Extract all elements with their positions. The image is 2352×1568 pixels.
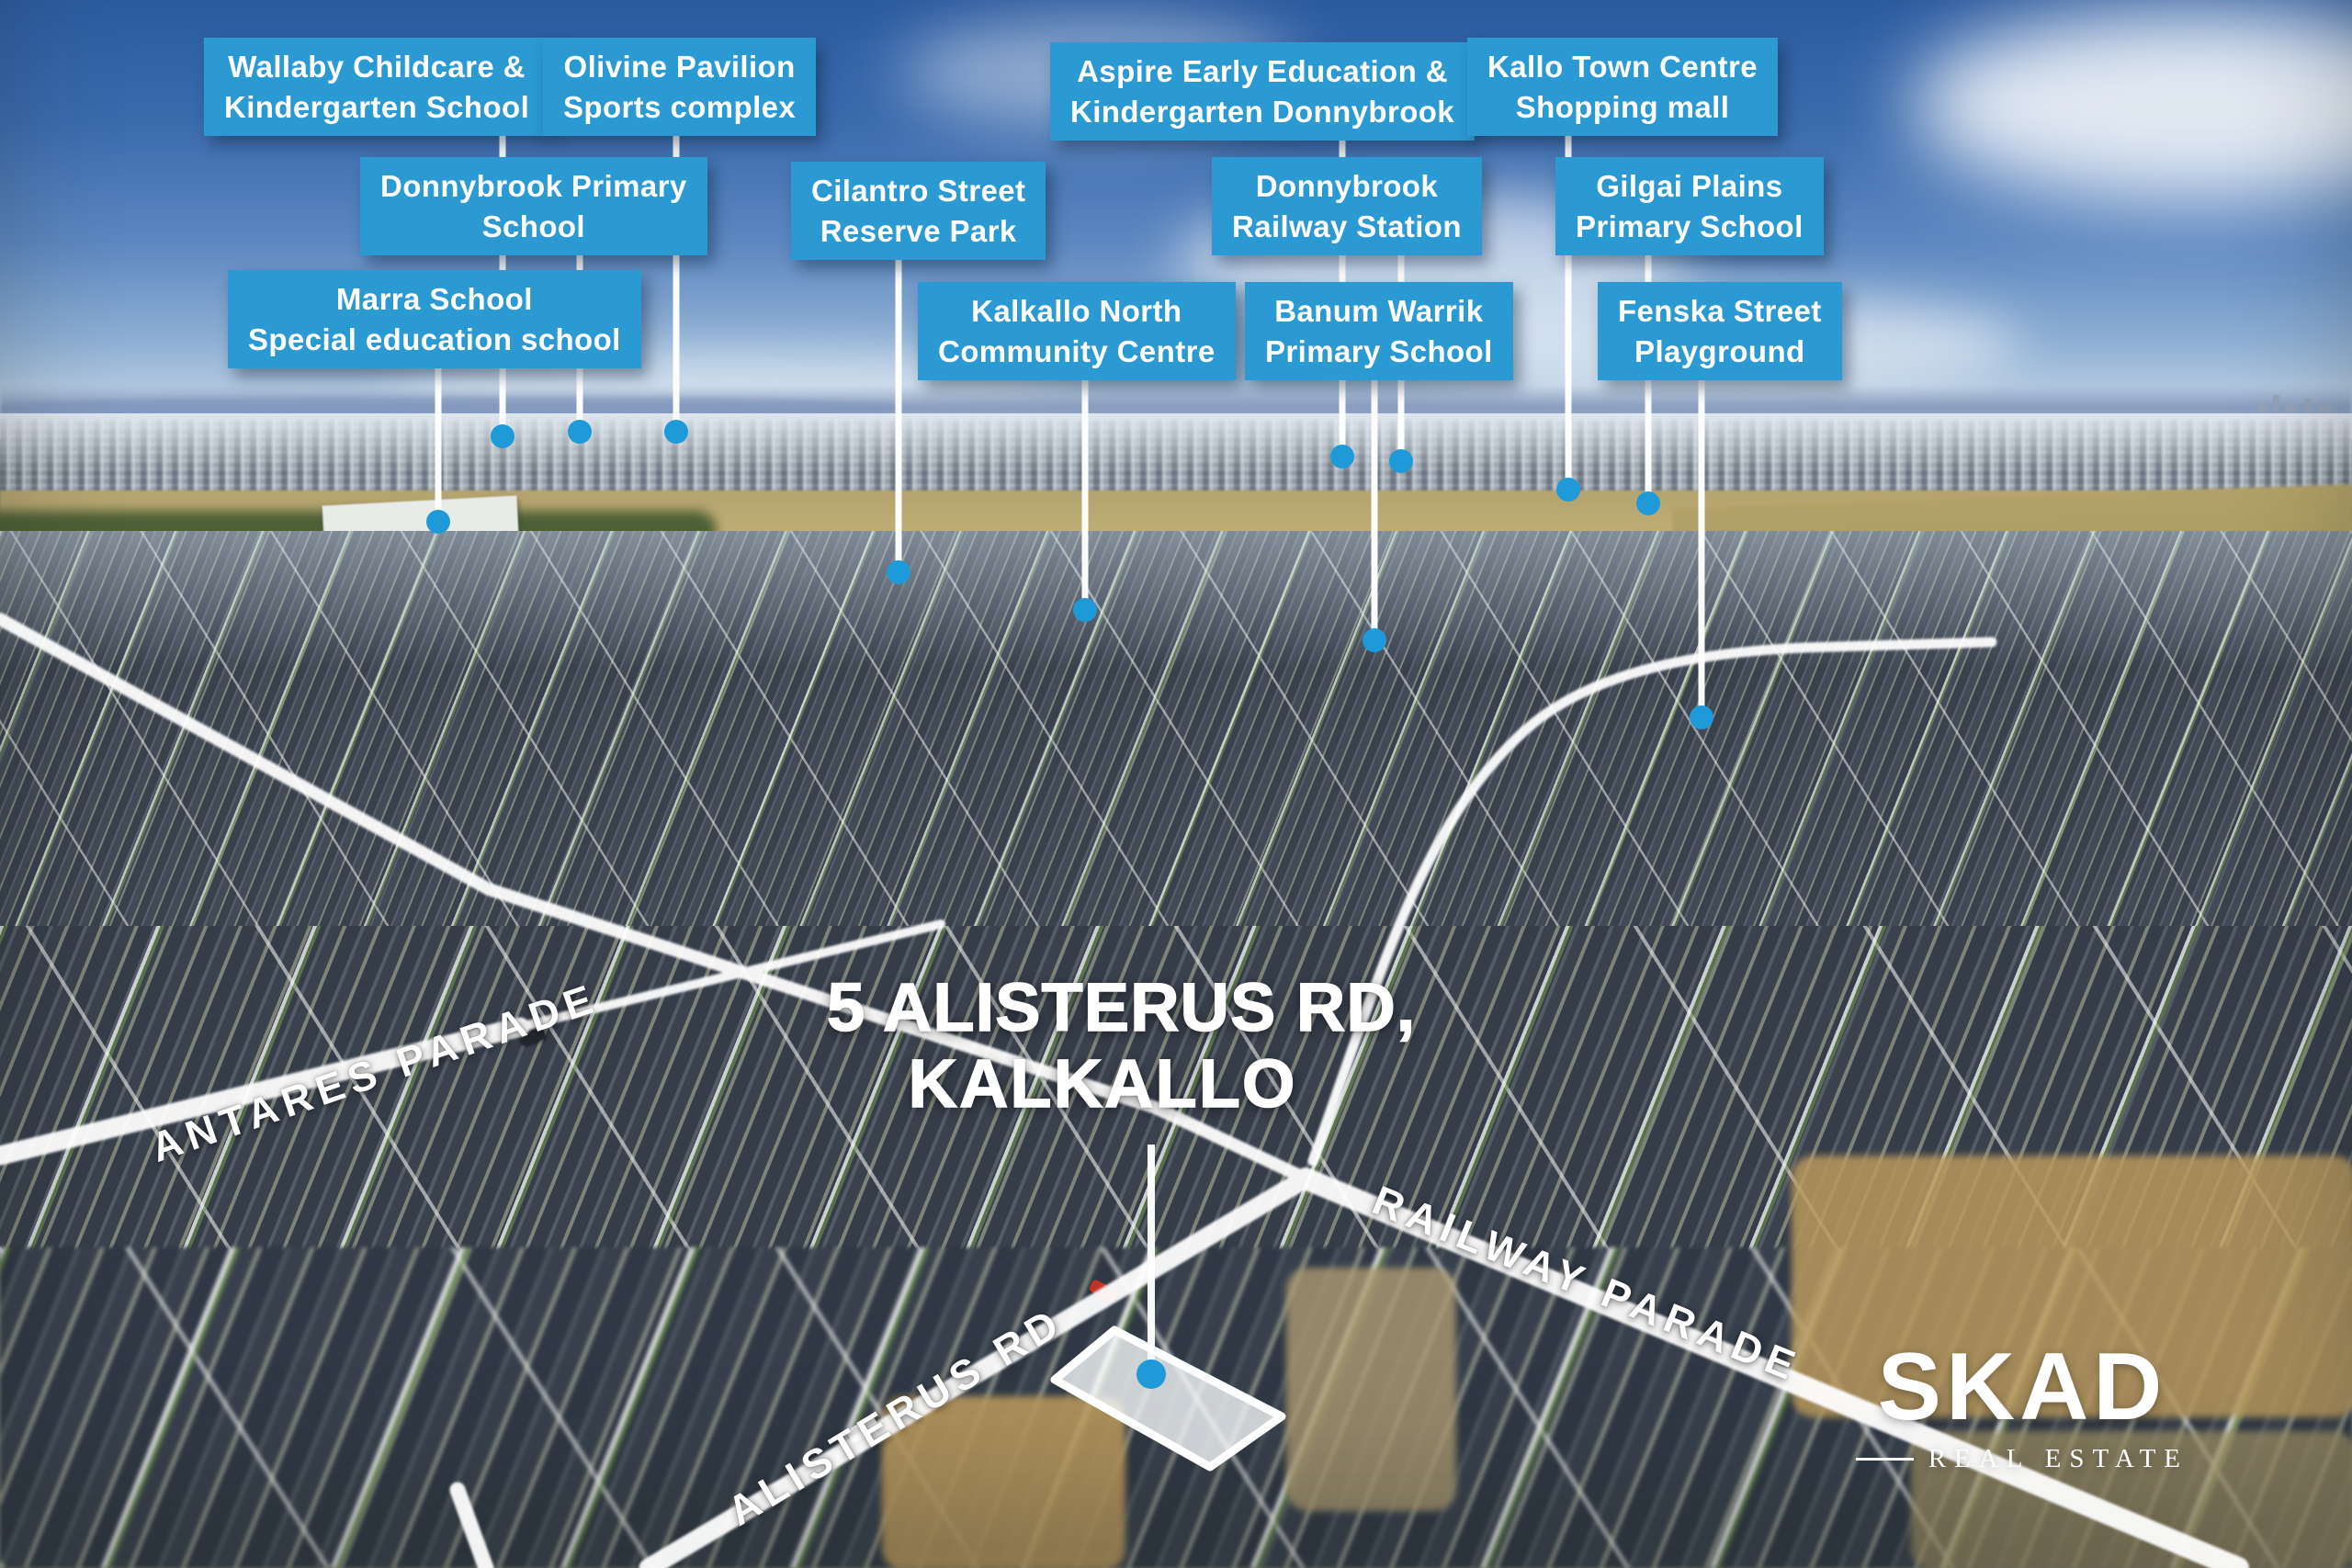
callout-gilgai-plains-primary: Gilgai Plains Primary School [1555, 157, 1824, 255]
callout-line: Kindergarten Donnybrook [1070, 92, 1454, 132]
marker-dot-donnybrook-primary [568, 420, 592, 444]
map-overlay [0, 0, 2352, 1568]
marker-dot-fenska [1690, 705, 1713, 729]
callout-fenska-street-playground: Fenska Street Playground [1598, 282, 1842, 380]
road-branch-highlight [1313, 642, 1992, 1161]
callout-line: Aspire Early Education & [1070, 51, 1454, 92]
callout-line: Reserve Park [811, 211, 1025, 252]
callout-line: Primary School [1265, 332, 1493, 372]
callout-line: Special education school [248, 320, 621, 360]
callout-olivine-pavilion: Olivine Pavilion Sports complex [543, 38, 816, 136]
callout-line: Community Centre [938, 332, 1216, 372]
callout-line: Banum Warrik [1265, 291, 1493, 332]
property-title-line1: 5 ALISTERUS RD, [827, 970, 1378, 1046]
callout-line: Donnybrook Primary [380, 166, 687, 207]
callout-line: School [380, 207, 687, 247]
callout-kalkallo-north-community: Kalkallo North Community Centre [918, 282, 1236, 380]
callout-line: Primary School [1576, 207, 1804, 247]
callout-kallo-town-centre: Kallo Town Centre Shopping mall [1467, 38, 1778, 136]
property-title: 5 ALISTERUS RD, KALKALLO [827, 970, 1378, 1122]
road-stub-highlight [458, 1490, 486, 1568]
marker-dot-banum [1363, 628, 1386, 652]
marker-dot-olivine [664, 420, 688, 444]
callout-line: Playground [1618, 332, 1822, 372]
marker-dot-marra [426, 510, 450, 534]
callout-donnybrook-railway-station: Donnybrook Railway Station [1212, 157, 1482, 255]
marker-dot-gilgai [1636, 491, 1660, 515]
logo-tagline: REAL ESTATE [1928, 1444, 2188, 1474]
aerial-map: ANTARES PARADE RAILWAY PARADE ALISTERUS … [0, 0, 2352, 1568]
callout-line: Kindergarten School [224, 87, 529, 128]
callout-line: Marra School [248, 279, 621, 320]
logo-rule [1856, 1458, 1914, 1461]
marker-dot-wallaby [491, 424, 514, 448]
callout-line: Railway Station [1232, 207, 1462, 247]
marker-dot-property [1136, 1359, 1166, 1389]
callout-line: Olivine Pavilion [563, 47, 796, 87]
callout-line: Wallaby Childcare & [224, 47, 529, 87]
property-title-line2: KALKALLO [827, 1046, 1378, 1122]
callout-line: Sports complex [563, 87, 796, 128]
logo-tagline-row: REAL ESTATE [1856, 1444, 2188, 1474]
callout-wallaby-childcare: Wallaby Childcare & Kindergarten School [204, 38, 549, 136]
agency-logo: SKAD REAL ESTATE [1856, 1339, 2188, 1474]
callout-line: Kalkallo North [938, 291, 1216, 332]
callout-cilantro-street-reserve: Cilantro Street Reserve Park [791, 162, 1046, 260]
property-boundary [1055, 1330, 1282, 1467]
callout-line: Gilgai Plains [1576, 166, 1804, 207]
callout-line: Donnybrook [1232, 166, 1462, 207]
marker-dot-donnybrook-railway [1389, 449, 1413, 473]
callout-aspire-early-education: Aspire Early Education & Kindergarten Do… [1050, 42, 1475, 141]
marker-dot-cilantro [887, 560, 910, 584]
callout-line: Kallo Town Centre [1487, 47, 1758, 87]
logo-brand: SKAD [1856, 1339, 2188, 1435]
callout-line: Cilantro Street [811, 171, 1025, 211]
marker-dot-aspire [1330, 445, 1354, 468]
callout-marra-school: Marra School Special education school [228, 270, 641, 368]
callout-banum-warrik-primary: Banum Warrik Primary School [1245, 282, 1513, 380]
callout-donnybrook-primary: Donnybrook Primary School [360, 157, 707, 255]
marker-dot-kallo [1556, 478, 1580, 502]
callout-line: Shopping mall [1487, 87, 1758, 128]
callout-line: Fenska Street [1618, 291, 1822, 332]
marker-dot-kalkallo-north [1073, 598, 1097, 622]
